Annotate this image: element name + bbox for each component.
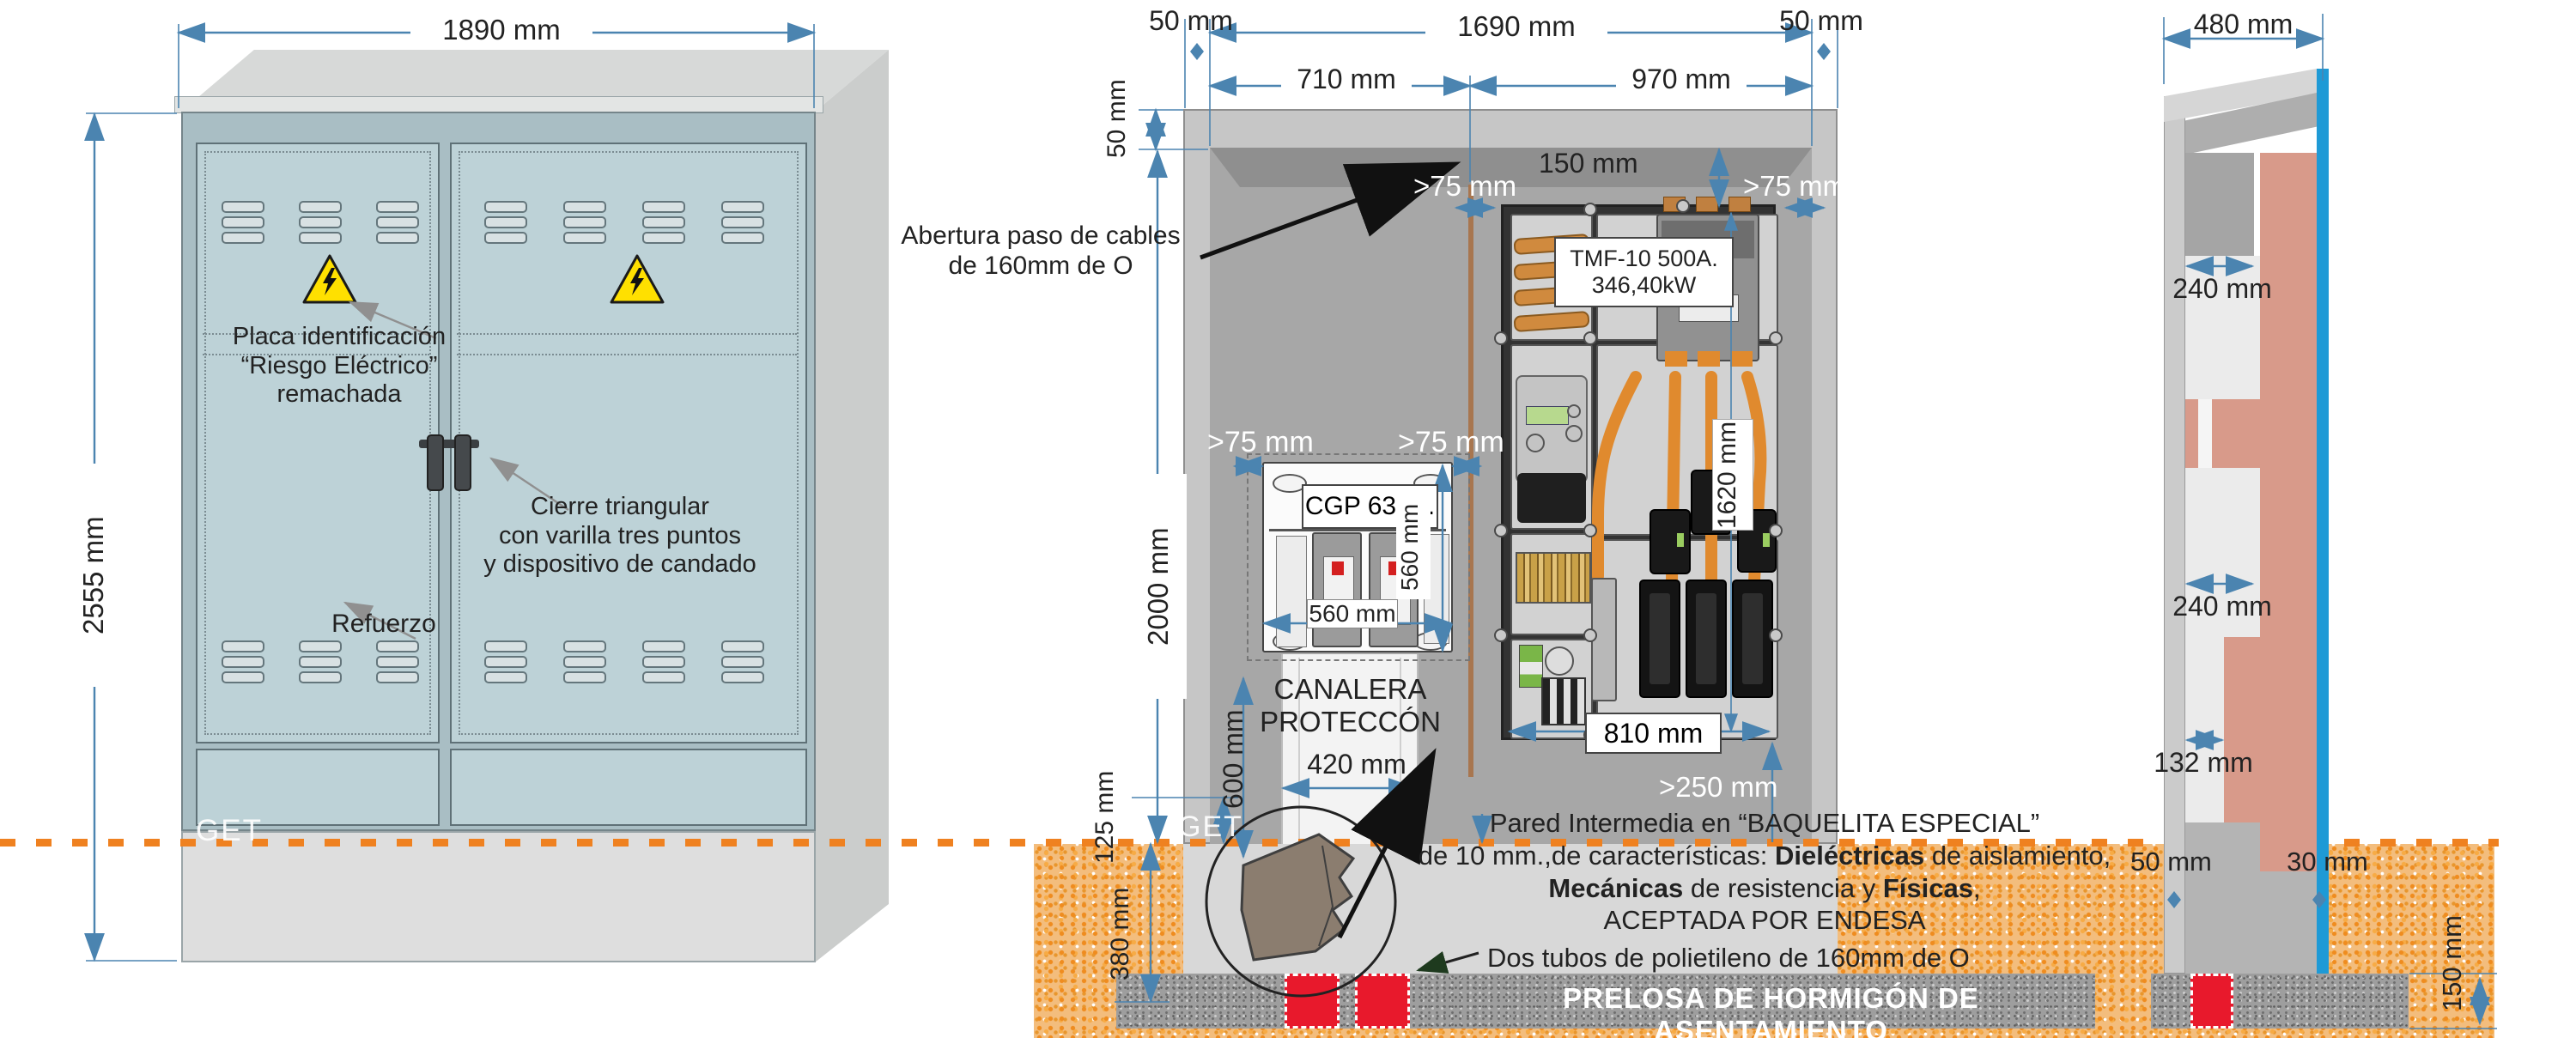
- dim-380: 380 mm: [1106, 867, 1142, 1001]
- label-dos-tubos: Dos tubos de polietileno de 160mm de O: [1487, 943, 1970, 974]
- dim-1620: 1620 mm: [1712, 419, 1753, 531]
- dim-1690: 1690 mm: [1425, 10, 1607, 43]
- technical-drawing-canvas: 1890 mm 2555 mm Placa identificación “Ri…: [0, 0, 2576, 1062]
- dim-240-top: 240 mm: [2154, 273, 2291, 305]
- label-get-mid: GET: [1178, 810, 1243, 844]
- label-tmf: TMF-10 500A. 346,40kW: [1554, 237, 1734, 307]
- dim-710: 710 mm: [1281, 64, 1412, 95]
- dim-cgp-height: 560 mm: [1396, 495, 1431, 599]
- dim-150: 150 mm: [1539, 148, 1689, 179]
- dim-gt250: >250 mm: [1659, 771, 1801, 804]
- dimension-lines-overlay: [0, 0, 2576, 1062]
- label-prelosa: PRELOSA DE HORMIGÓN DE ASENTAMIENTO: [1451, 982, 2091, 1048]
- dim-30-side: 30 mm: [2274, 847, 2381, 877]
- dim-gt75-top-left: >75 mm: [1413, 170, 1534, 203]
- dim-480: 480 mm: [2177, 9, 2310, 40]
- pared-line-3: Mecánicas de resistencia y Físicas,: [1417, 872, 2112, 905]
- dim-420: 420 mm: [1297, 749, 1417, 780]
- dim-gt75-top-right: >75 mm: [1743, 170, 1868, 203]
- dim-125: 125 mm: [1091, 757, 1127, 877]
- dim-50-right: 50 mm: [1765, 5, 1877, 37]
- pared-line-2: de 10 mm.,de características: Dieléctric…: [1417, 840, 2112, 872]
- label-cierre-triangular: Cierre triangular con varilla tres punto…: [474, 493, 766, 580]
- dim-2000: 2000 mm: [1137, 474, 1187, 699]
- label-pared-intermedia: Pared Intermedia en “BAQUELITA ESPECIAL”…: [1417, 807, 2112, 937]
- dim-50-left: 50 mm: [1135, 5, 1247, 37]
- dim-970: 970 mm: [1616, 64, 1747, 95]
- tubes-leader: [1419, 953, 1479, 970]
- pared-line-4: ACEPTADA POR ENDESA: [1417, 904, 2112, 937]
- label-refuerzo: Refuerzo: [319, 610, 448, 640]
- dim-gt75-cgp-left: >75 mm: [1207, 426, 1358, 459]
- dim-gt75-cgp-right: >75 mm: [1398, 426, 1548, 459]
- label-canalera: CANALERA PROTECCÓN: [1245, 673, 1455, 739]
- dim-240-mid: 240 mm: [2154, 591, 2291, 622]
- dim-50-top-wall: 50 mm: [1103, 70, 1137, 167]
- dim-cabinet-height: 2555 mm: [72, 464, 125, 687]
- dim-cgp-width: 560 mm: [1307, 599, 1398, 628]
- label-placa-identificacion: Placa identificación “Riesgo Eléctrico” …: [219, 323, 459, 410]
- dim-50-side: 50 mm: [2117, 847, 2225, 877]
- dim-810: 810 mm: [1585, 713, 1722, 754]
- dim-132: 132 mm: [2135, 747, 2272, 779]
- pared-line-1: Pared Intermedia en “BAQUELITA ESPECIAL”: [1417, 807, 2112, 840]
- dim-150-side: 150 mm: [2437, 884, 2475, 1043]
- dim-cabinet-width: 1890 mm: [410, 14, 592, 46]
- label-abertura: Abertura paso de cables de 160mm de O: [869, 222, 1212, 282]
- label-get-plinth: GET: [196, 814, 263, 849]
